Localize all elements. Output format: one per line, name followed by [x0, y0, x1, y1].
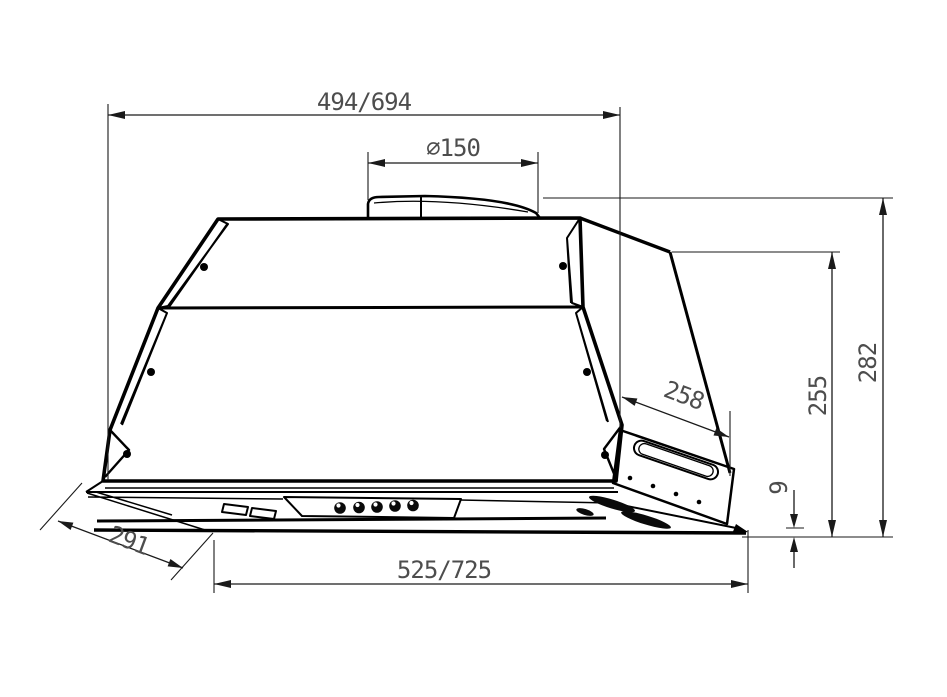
control-button [353, 502, 365, 514]
screw [628, 476, 633, 481]
arrowhead [828, 520, 836, 537]
control-button [389, 500, 401, 512]
dim-label-side-slant-depth: 258 [660, 375, 708, 415]
dim-label-visor-depth: 291 [105, 520, 153, 560]
screw [651, 484, 656, 489]
arrowhead [879, 520, 887, 537]
extension-line [171, 533, 213, 580]
hood-top-right-slope [580, 218, 670, 252]
bottom-visor [86, 481, 748, 534]
filter-clip [250, 508, 276, 519]
dim-label-duct-diameter: ⌀150 [426, 134, 480, 162]
control-button [371, 501, 383, 513]
dim-label-overall-height: 282 [854, 343, 882, 383]
arrowhead [368, 159, 385, 167]
button-highlight [391, 501, 395, 505]
arrowhead [828, 252, 836, 269]
dim-label-visor-thickness: 9 [765, 481, 793, 494]
hood-body [103, 218, 730, 488]
button-highlight [373, 502, 377, 506]
duct-collar-outline [368, 196, 540, 218]
screw [123, 450, 131, 458]
dim-bottom-width: 525/725 [214, 530, 748, 593]
drawing-svg: 494/694 ⌀150 282 255 9 [0, 0, 947, 697]
screw [200, 263, 208, 271]
dim-visor-thickness: 9 [742, 481, 893, 568]
left-lower-band [121, 308, 167, 425]
dim-label-body-height: 255 [804, 376, 832, 416]
cap-slot-inner [637, 442, 714, 478]
screw [697, 500, 702, 505]
dim-overall-height: 282 [543, 198, 893, 537]
arrowhead [521, 159, 538, 167]
dim-label-bottom-width: 525/725 [397, 556, 491, 584]
arrowhead [731, 580, 748, 588]
visor-front-bottom-edge [94, 530, 746, 533]
hood-front-face [103, 218, 622, 481]
arrowhead [108, 111, 125, 119]
duct-collar [368, 196, 540, 218]
arrowhead [714, 428, 730, 437]
control-button [407, 500, 419, 512]
hood-dimension-drawing: 494/694 ⌀150 282 255 9 [0, 0, 947, 697]
screw [601, 451, 609, 459]
arrowhead [58, 521, 73, 530]
lamp-cutout [576, 506, 595, 517]
hood-mid-seam [158, 307, 583, 308]
arrowhead [603, 111, 620, 119]
dim-label-top-width: 494/694 [317, 88, 412, 116]
screw [583, 368, 591, 376]
arrowhead [168, 559, 183, 568]
arrowhead [790, 514, 798, 528]
button-highlight [409, 501, 413, 505]
arrowhead [214, 580, 231, 588]
button-highlight [355, 503, 359, 507]
lamp-cutout [620, 508, 672, 532]
arrowhead [622, 397, 637, 406]
screw [559, 262, 567, 270]
screw [674, 492, 679, 497]
filter-clip [222, 504, 248, 515]
control-buttons [334, 500, 419, 514]
visor-front-band [97, 518, 606, 521]
button-highlight [336, 503, 340, 507]
hood-back-right-edge [670, 252, 730, 473]
arrowhead [790, 537, 798, 552]
control-button [334, 502, 346, 514]
screw [147, 368, 155, 376]
cap-screws [628, 476, 702, 505]
arrowhead [879, 198, 887, 215]
